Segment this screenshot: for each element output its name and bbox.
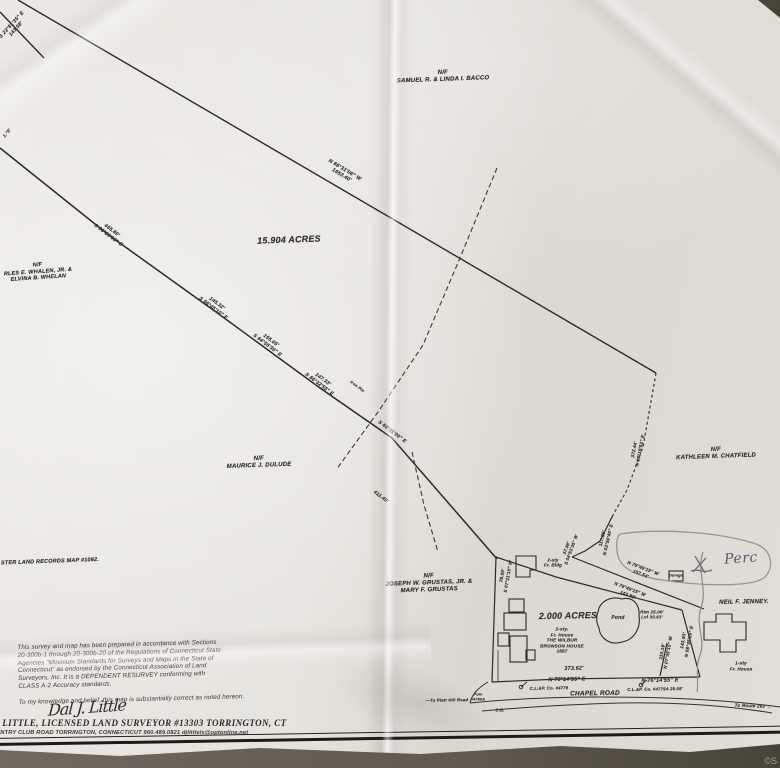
acreage-main-text: 15.904 ACRES xyxy=(257,233,321,246)
acreage-parcel-text: 2.000 ACRES xyxy=(539,610,598,622)
owner-jenney: NEIL F. JENNEY. xyxy=(719,599,769,607)
owner-chatfield: N/FKATHLEEN M. CHATFIELD xyxy=(676,445,756,462)
barn-label-text: Fr. Bldg xyxy=(544,563,562,568)
garage-label-text: Garage xyxy=(669,574,683,579)
platt-hill-note-text: —To Platt Hill Road xyxy=(426,697,469,703)
jenney-house-building xyxy=(704,614,746,652)
road-south-edge xyxy=(482,703,772,713)
bronson-house-c xyxy=(498,633,509,646)
owner-grustas: N/FJOSEPH W. GRUSTAS, JR. &MARY F. GRUST… xyxy=(385,572,473,597)
bronson-house-d xyxy=(510,636,527,662)
utility-pole-b-note-text: C.L.&P. Co. #4779A 25.08' xyxy=(627,686,683,692)
road-bearing-b-text: N 76°14'55" E xyxy=(641,677,678,684)
handwritten-perc-text: Perc xyxy=(724,549,759,568)
road-bearing-a-text: N 76°14'55" E xyxy=(548,676,585,683)
pond-label-text: Pond xyxy=(611,615,624,621)
handwritten-perc: Perc xyxy=(724,549,759,568)
road-distance-373-text: 373.62' xyxy=(564,666,583,673)
stone-wall-dashed-2 xyxy=(412,452,438,552)
utility-pole-b-note: C.L.&P. Co. #4779A 25.08' xyxy=(627,686,683,692)
platt-hill-note: —To Platt Hill Road xyxy=(426,697,469,703)
road-name: CHAPEL ROAD xyxy=(570,690,620,699)
bronson-house-label-text: 1857 xyxy=(540,648,584,654)
bronson-driveway xyxy=(492,650,498,682)
jenney-house-label-text: Fr. House xyxy=(730,666,753,672)
utility-pole-a-note-text: C.L.&P. Co. #4779 xyxy=(530,685,569,691)
pole-4780-note-text: #4780A xyxy=(471,697,486,702)
pencil-jenney-driveway xyxy=(697,552,703,692)
pond-label: Pond xyxy=(611,615,624,621)
pole-flag-a xyxy=(521,682,527,687)
stone-wall-dashed-1 xyxy=(336,168,497,470)
pond-elevations: Rim 25.00'Lvl 30.63' xyxy=(640,610,664,621)
north-boundary-line xyxy=(18,0,656,373)
owner-dulude: N/FMAURICE J. DULUDE xyxy=(226,455,291,472)
south-boundary-line xyxy=(0,148,497,559)
pole-4780-note: Pole#4780A xyxy=(471,692,486,701)
road-bearing-a: N 76°14'55" E xyxy=(548,676,585,683)
bronson-house-b xyxy=(504,613,526,630)
jenney-house-label: 1-styFr. House xyxy=(730,661,753,672)
garage-label: Garage xyxy=(669,574,683,579)
road-distance-373: 373.62' xyxy=(564,666,583,673)
barn-label: 2-styFr. Bldg xyxy=(544,558,562,569)
bronson-house-label: 2-sty.Fr. HouseTHE WILBURBRONSON HOUSE18… xyxy=(540,626,584,654)
road-name-text: CHAPEL ROAD xyxy=(570,690,620,699)
utility-pole-a-note: C.L.&P. Co. #4779 xyxy=(530,685,569,691)
road-north-edge xyxy=(470,697,780,707)
survey-map-photo: S 23°51'35" E143.58'1.°0'N/FSAMUEL R. & … xyxy=(0,0,780,768)
catch-basin-note-text: C.B. xyxy=(495,707,504,712)
catch-basin-note: C.B. xyxy=(495,707,504,712)
acreage-parcel: 2.000 ACRES xyxy=(539,610,598,622)
road-bearing-b: N 76°14'55" E xyxy=(641,677,678,684)
owner-jenney-text: NEIL F. JENNEY. xyxy=(719,599,769,607)
paper-sheet: S 23°51'35" E143.58'1.°0'N/FSAMUEL R. & … xyxy=(0,0,780,768)
pond-elevations-text: Lvl 30.63' xyxy=(640,615,664,620)
bronson-house-a xyxy=(509,599,524,612)
photo-watermark: ©S xyxy=(764,756,777,766)
bronson-house-label-text: THE WILBUR xyxy=(540,637,584,643)
acreage-main: 15.904 ACRES xyxy=(257,233,321,246)
certification-block: This survey and map has been prepared in… xyxy=(17,636,329,706)
surveyor-title-line: J. LITTLE, LICENSED LAND SURVEYOR #13303… xyxy=(0,718,287,728)
